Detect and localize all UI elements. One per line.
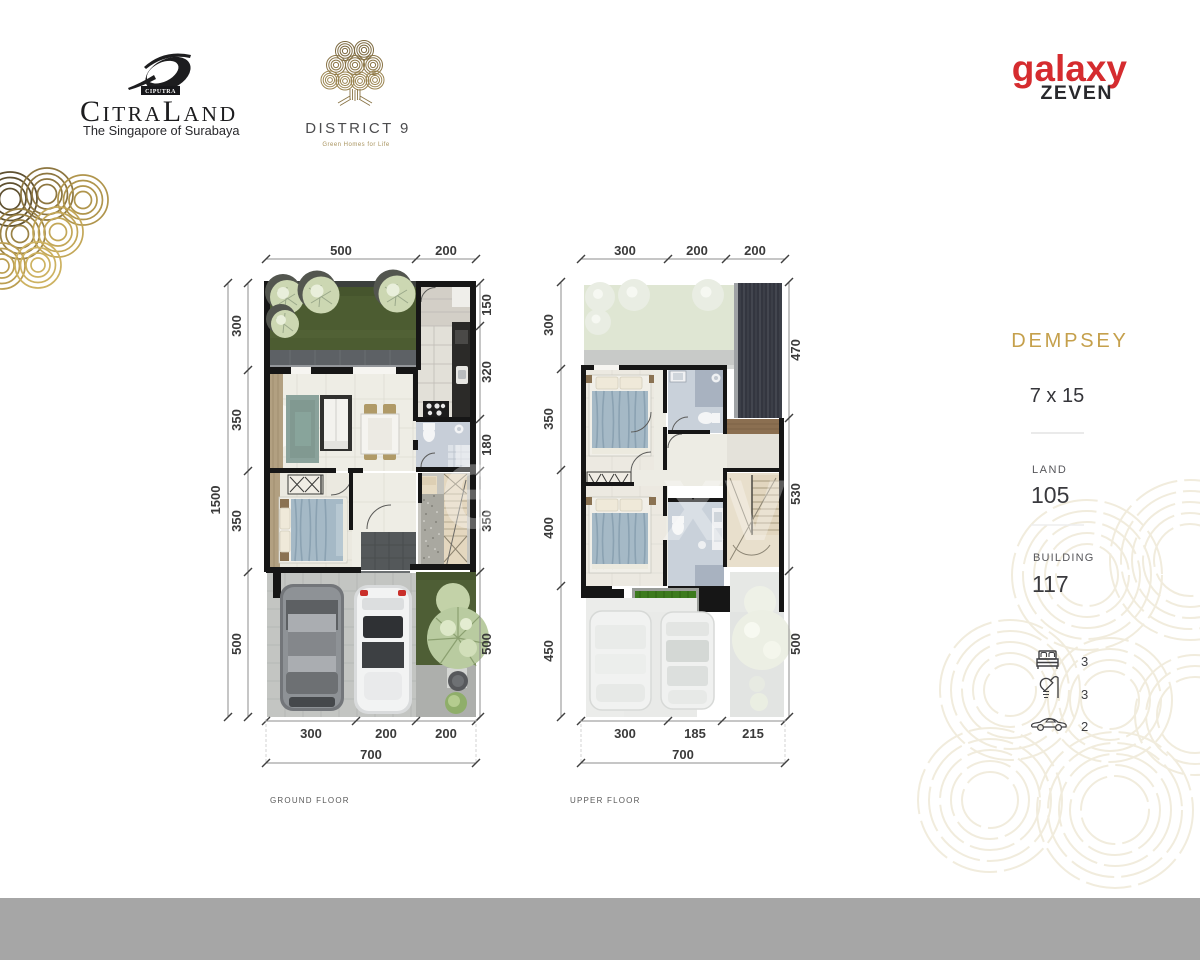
svg-text:300: 300 — [229, 315, 244, 337]
svg-text:185: 185 — [684, 726, 706, 741]
svg-text:200: 200 — [375, 726, 397, 741]
svg-text:350: 350 — [229, 409, 244, 431]
svg-text:200: 200 — [686, 243, 708, 258]
svg-text:UPPER FLOOR: UPPER FLOOR — [570, 796, 641, 805]
svg-text:350: 350 — [229, 510, 244, 532]
svg-text:500: 500 — [229, 633, 244, 655]
svg-text:3: 3 — [1081, 654, 1088, 669]
svg-text:500: 500 — [330, 243, 352, 258]
svg-text:DEMPSEY: DEMPSEY — [1011, 330, 1128, 352]
svg-text:215: 215 — [742, 726, 764, 741]
svg-text:xv: xv — [662, 439, 787, 564]
svg-text:200: 200 — [435, 243, 457, 258]
svg-text:400: 400 — [541, 517, 556, 539]
svg-text:200: 200 — [744, 243, 766, 258]
svg-text:ZEVEN: ZEVEN — [1040, 82, 1113, 104]
svg-text:450: 450 — [541, 640, 556, 662]
svg-text:GROUND FLOOR: GROUND FLOOR — [270, 796, 350, 805]
svg-text:The Singapore of Surabaya: The Singapore of Surabaya — [83, 123, 240, 138]
svg-text:DISTRICT 9: DISTRICT 9 — [305, 120, 410, 137]
svg-text:320: 320 — [479, 361, 494, 383]
svg-text:300: 300 — [614, 243, 636, 258]
svg-text:e: e — [440, 422, 506, 554]
svg-text:LAND: LAND — [1032, 464, 1067, 476]
svg-text:3: 3 — [1081, 687, 1088, 702]
svg-text:200: 200 — [435, 726, 457, 741]
svg-text:470: 470 — [788, 339, 803, 361]
svg-text:105: 105 — [1031, 482, 1069, 508]
svg-text:BUILDING: BUILDING — [1033, 552, 1095, 564]
svg-text:300: 300 — [614, 726, 636, 741]
svg-text:2: 2 — [1081, 719, 1088, 734]
svg-text:700: 700 — [360, 747, 382, 762]
svg-text:500: 500 — [788, 633, 803, 655]
svg-text:700: 700 — [672, 747, 694, 762]
svg-text:7 x 15: 7 x 15 — [1030, 385, 1084, 407]
svg-text:1500: 1500 — [208, 486, 223, 515]
svg-text:530: 530 — [788, 483, 803, 505]
svg-text:300: 300 — [541, 314, 556, 336]
svg-text:117: 117 — [1032, 571, 1069, 597]
svg-text:350: 350 — [541, 408, 556, 430]
svg-text:Green Homes for Life: Green Homes for Life — [322, 142, 390, 148]
svg-text:300: 300 — [300, 726, 322, 741]
svg-text:150: 150 — [479, 294, 494, 316]
svg-text:500: 500 — [479, 633, 494, 655]
